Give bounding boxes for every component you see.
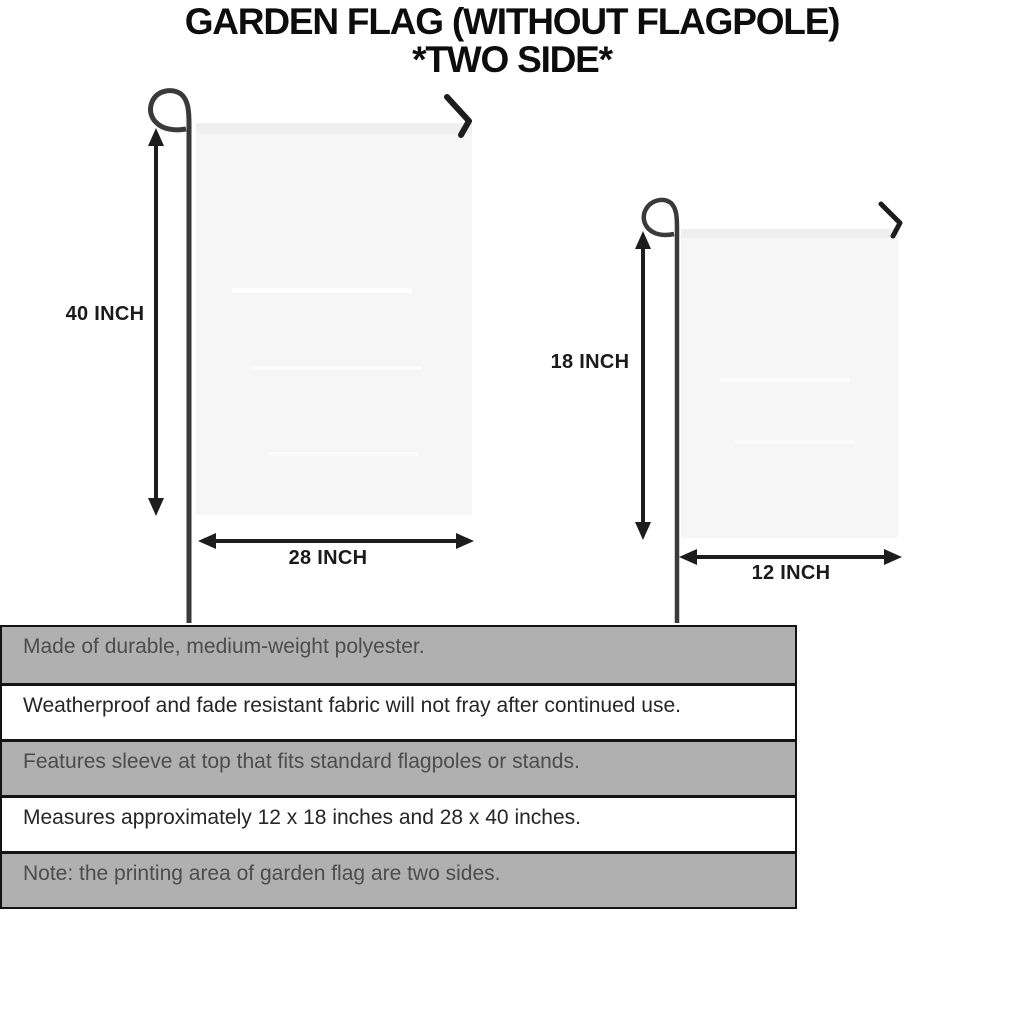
small-flag-height-arrow <box>635 231 651 540</box>
flag-wrinkle <box>232 288 412 293</box>
large-flag-height-label: 40 INCH <box>45 303 165 326</box>
product-info-image: GARDEN FLAG (WITHOUT FLAGPOLE) *TWO SIDE… <box>0 0 1024 1024</box>
flag-wrinkle <box>735 440 855 444</box>
feature-row-sleeve: Features sleeve at top that fits standar… <box>2 739 795 795</box>
feature-row-note: Note: the printing area of garden flag a… <box>2 851 795 907</box>
large-flag-width-label: 28 INCH <box>268 547 388 570</box>
small-flag-pole <box>644 200 677 623</box>
small-flag-sleeve <box>681 229 898 238</box>
large-flag-sleeve <box>196 123 472 134</box>
features-table: Made of durable, medium-weight polyester… <box>0 625 797 909</box>
small-flag-group <box>635 200 902 623</box>
small-flag-panel <box>681 229 898 538</box>
feature-row-material: Made of durable, medium-weight polyester… <box>2 627 795 683</box>
small-flag-height-label: 18 INCH <box>530 351 650 374</box>
flag-wrinkle <box>720 378 850 382</box>
large-flag-panel <box>196 123 472 515</box>
flag-wrinkle <box>252 366 422 370</box>
flag-wrinkle <box>268 452 418 456</box>
large-flag-group <box>148 91 474 623</box>
small-flag-width-label: 12 INCH <box>731 562 851 585</box>
feature-row-measures: Measures approximately 12 x 18 inches an… <box>2 795 795 851</box>
feature-row-weatherproof: Weatherproof and fade resistant fabric w… <box>2 683 795 739</box>
